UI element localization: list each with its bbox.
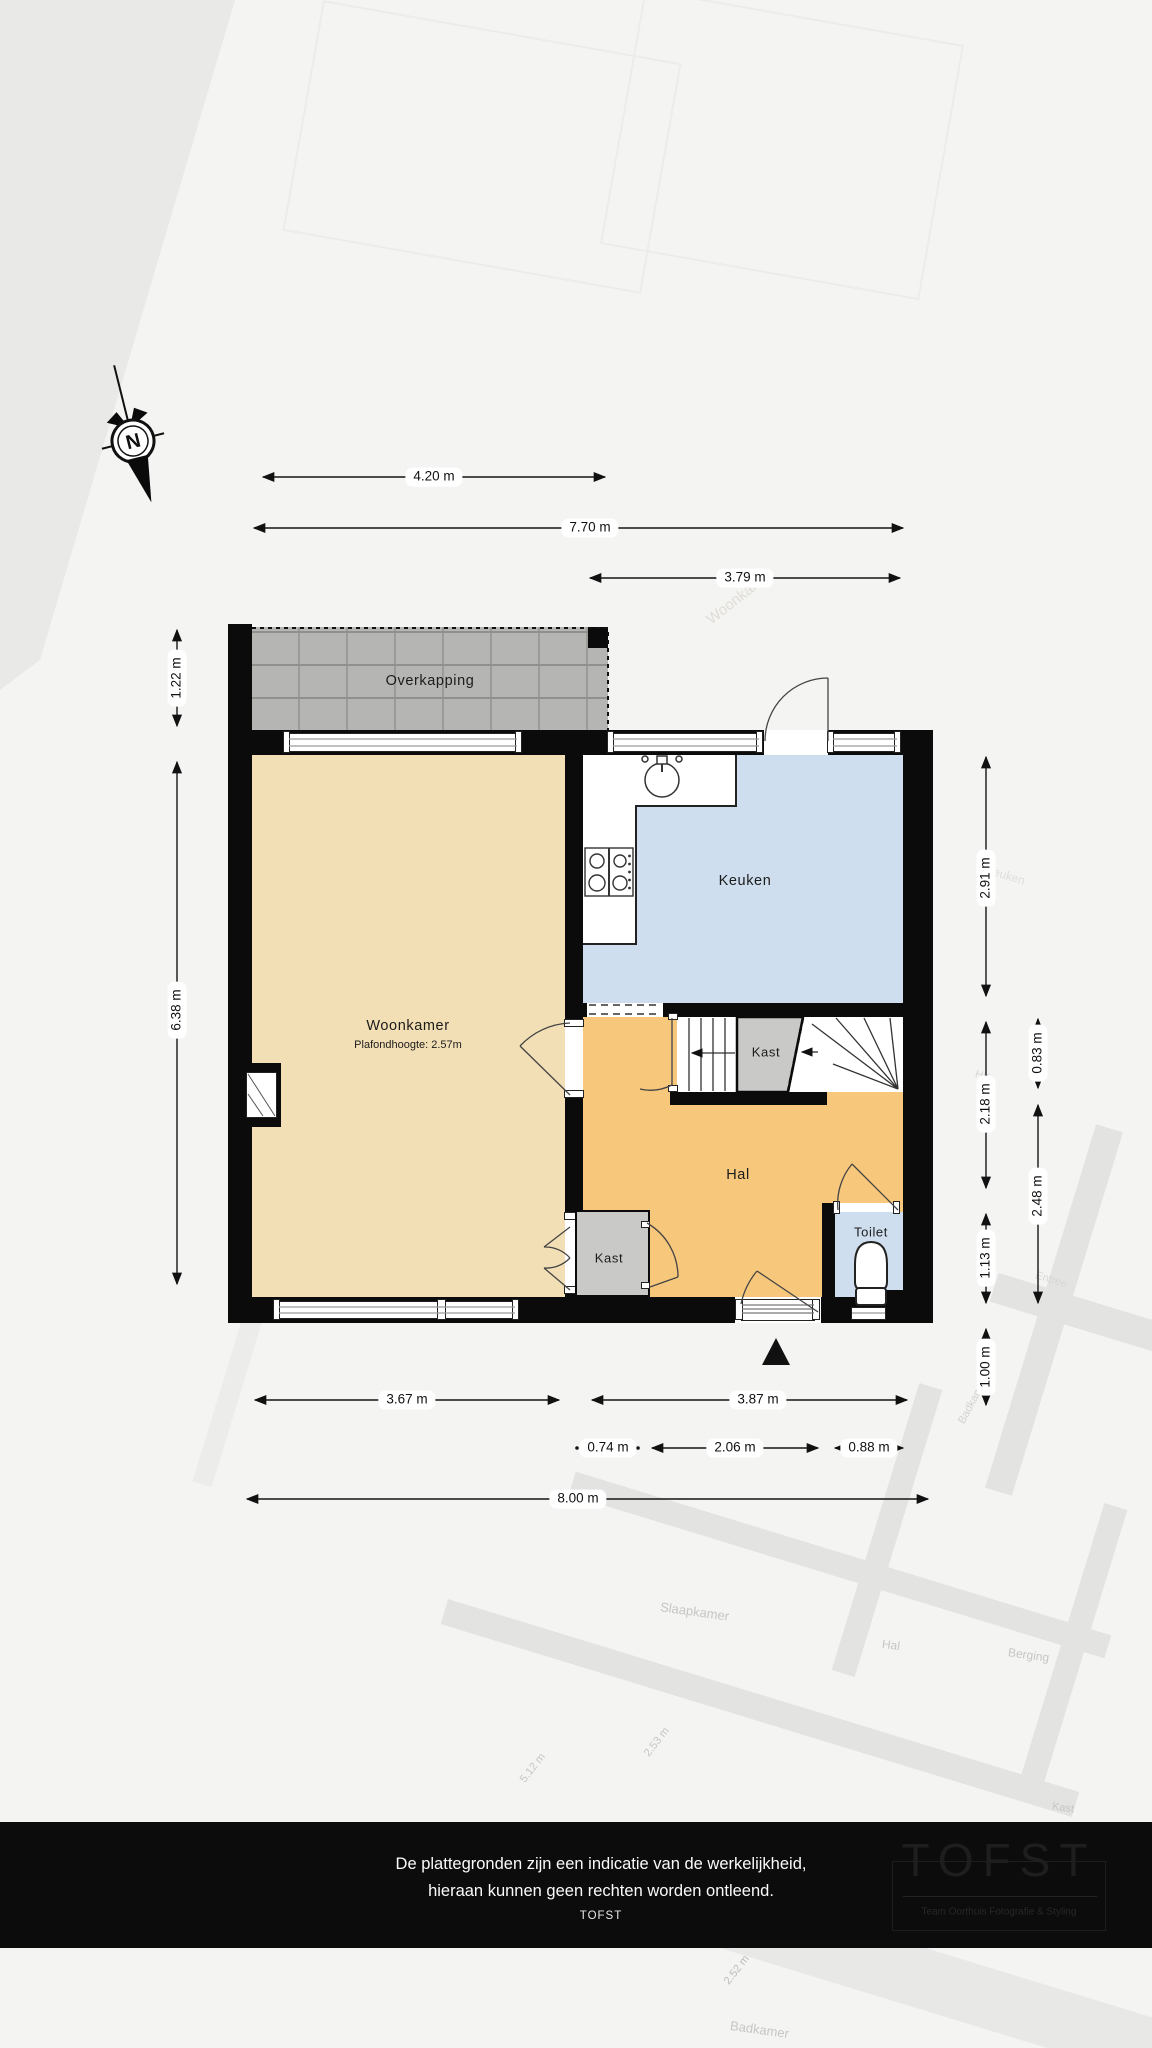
- threshold-lines: [742, 1305, 814, 1313]
- dim-right-218: 2.18 m: [977, 1075, 996, 1132]
- dim-top-379: 3.79 m: [716, 569, 773, 588]
- label-kast-stairs: Kast: [752, 1045, 780, 1060]
- label-kast-hal: Kast: [595, 1251, 623, 1266]
- kast-door-lower: [544, 1258, 570, 1290]
- door-front: [741, 1271, 818, 1312]
- entrance-arrow: [762, 1338, 790, 1365]
- toilet-fixture: [855, 1242, 887, 1305]
- dim-bottom-367: 3.67 m: [378, 1391, 435, 1410]
- dim-right-248: 2.48 m: [1029, 1167, 1048, 1224]
- door-woonkamer: [520, 1023, 570, 1095]
- footer-disclaimer-line2: hieraan kunnen geen rechten worden ontle…: [428, 1882, 774, 1901]
- dim-right-291: 2.91 m: [977, 849, 996, 906]
- door-stairs: [640, 1018, 672, 1090]
- dim-right-083: 0.83 m: [1029, 1024, 1048, 1081]
- floorplan-page: Woonkamer Keuken HK Entree Badkamer Slaa…: [0, 0, 1152, 2048]
- dim-top-420: 4.20 m: [405, 468, 462, 487]
- dim-right-113: 1.13 m: [977, 1229, 996, 1286]
- stairs: [689, 1017, 898, 1092]
- dim-bottom-800: 8.00 m: [549, 1490, 606, 1509]
- kast-door-hal: [647, 1223, 678, 1287]
- niche-hatch: [248, 1074, 275, 1116]
- sink-icon: [642, 756, 682, 797]
- label-keuken: Keuken: [719, 873, 772, 889]
- tofst-logo-rule: [903, 1896, 1097, 1897]
- label-toilet: Toilet: [854, 1225, 888, 1240]
- door-keuken: [765, 678, 828, 741]
- footer-disclaimer-line1: De plattegronden zijn een indicatie van …: [396, 1855, 807, 1874]
- dim-bottom-206: 2.06 m: [706, 1439, 763, 1458]
- dimension-lines: [177, 477, 1038, 1499]
- label-overkapping: Overkapping: [386, 673, 475, 689]
- stove-icon: [585, 848, 633, 896]
- compass: N: [83, 358, 179, 511]
- kast-door-upper: [544, 1227, 570, 1258]
- dashed-opening: [589, 1005, 661, 1014]
- label-woonkamer-ceiling: Plafondhoogte: 2.57m: [354, 1039, 462, 1051]
- tofst-logo-subtitle: Team Oorthuis Fotografie & Styling: [921, 1907, 1076, 1918]
- dim-right-100: 1.00 m: [977, 1338, 996, 1395]
- label-hal: Hal: [726, 1167, 750, 1183]
- dim-left-638: 6.38 m: [168, 981, 187, 1038]
- door-arcs: [520, 678, 898, 1312]
- dim-bottom-088: 0.88 m: [840, 1439, 897, 1458]
- footer-tofst-text: TOFST: [580, 1910, 622, 1922]
- dim-bottom-074: 0.74 m: [579, 1439, 636, 1458]
- dim-left-122: 1.22 m: [168, 649, 187, 706]
- dim-bottom-387: 3.87 m: [729, 1391, 786, 1410]
- tofst-logo-title: TOFST: [902, 1833, 1097, 1887]
- door-toilet: [838, 1164, 898, 1210]
- dim-top-770: 7.70 m: [561, 519, 618, 538]
- label-woonkamer: Woonkamer: [366, 1018, 449, 1034]
